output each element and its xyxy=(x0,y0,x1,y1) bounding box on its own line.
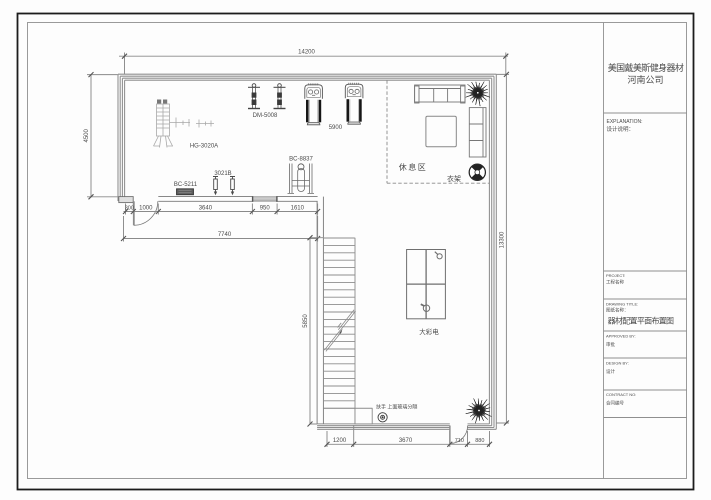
svg-text:14200: 14200 xyxy=(298,50,315,56)
svg-text:审批: 审批 xyxy=(606,341,615,348)
svg-text:设计说明：: 设计说明： xyxy=(607,125,635,133)
svg-text:BC-5211: BC-5211 xyxy=(174,182,198,188)
svg-text:工程名称: 工程名称 xyxy=(606,279,624,286)
svg-text:5850: 5850 xyxy=(303,314,309,328)
svg-text:950: 950 xyxy=(260,206,271,212)
svg-text:3670: 3670 xyxy=(399,438,413,444)
svg-text:大彩电: 大彩电 xyxy=(419,327,439,336)
svg-text:器材配置平面布置图: 器材配置平面布置图 xyxy=(608,316,674,326)
svg-text:3021B: 3021B xyxy=(214,171,231,177)
svg-text:DESIGN BY:: DESIGN BY: xyxy=(606,361,629,366)
svg-text:CONTRACT NO:: CONTRACT NO: xyxy=(606,392,636,397)
svg-text:BC-8837: BC-8837 xyxy=(289,157,313,163)
svg-text:1610: 1610 xyxy=(291,206,305,212)
svg-text:EXPLANATION:: EXPLANATION: xyxy=(607,119,643,125)
svg-text:300: 300 xyxy=(125,206,134,212)
svg-text:710: 710 xyxy=(455,438,464,444)
svg-text:7740: 7740 xyxy=(218,232,232,238)
svg-text:APPROVED BY:: APPROVED BY: xyxy=(606,334,636,339)
svg-text:DRAWING TITLE:: DRAWING TITLE: xyxy=(606,302,638,307)
svg-text:合同编号: 合同编号 xyxy=(606,400,624,407)
svg-text:DM-5008: DM-5008 xyxy=(253,113,278,119)
svg-text:HG-3020A: HG-3020A xyxy=(190,144,218,150)
svg-text:河南公司: 河南公司 xyxy=(627,74,663,85)
svg-text:图纸名称：: 图纸名称： xyxy=(606,307,629,314)
svg-text:1000: 1000 xyxy=(139,206,153,212)
svg-text:美国戴美斯健身器材: 美国戴美斯健身器材 xyxy=(608,62,684,73)
svg-text:3640: 3640 xyxy=(199,206,213,212)
svg-text:休息区: 休息区 xyxy=(399,162,428,172)
svg-text:4500: 4500 xyxy=(84,128,90,142)
svg-text:扶手 上面玻璃分隔: 扶手 上面玻璃分隔 xyxy=(376,404,417,411)
svg-text:1200: 1200 xyxy=(333,438,347,444)
svg-text:PROJECT:: PROJECT: xyxy=(606,273,625,278)
svg-text:5900: 5900 xyxy=(329,125,343,131)
svg-text:衣架: 衣架 xyxy=(447,174,461,183)
svg-text:880: 880 xyxy=(475,438,484,444)
svg-text:设计: 设计 xyxy=(606,368,615,375)
svg-text:13300: 13300 xyxy=(499,231,505,248)
